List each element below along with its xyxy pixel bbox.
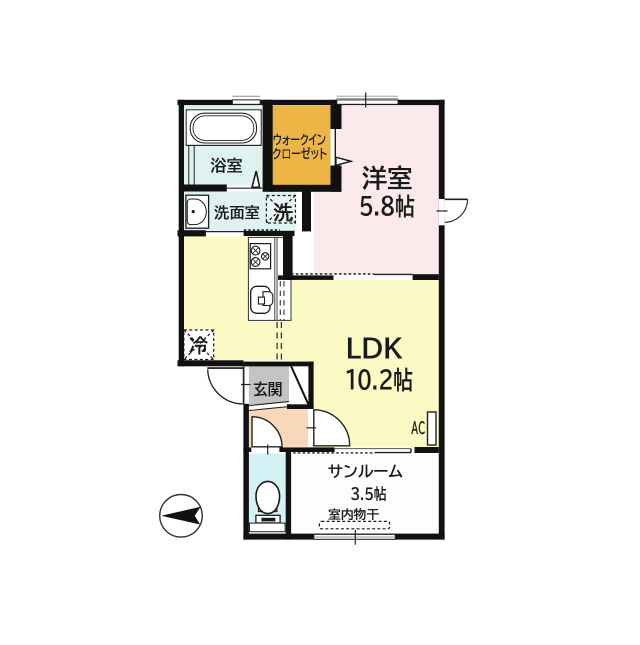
svg-text:5.8帖: 5.8帖 [359,194,415,218]
svg-text:洗: 洗 [272,202,293,223]
svg-text:玄関: 玄関 [253,381,282,397]
svg-text:洋室: 洋室 [362,165,413,192]
svg-text:サンルーム: サンルーム [328,463,403,479]
svg-text:洗面室: 洗面室 [214,205,260,220]
svg-text:冷: 冷 [189,336,208,355]
svg-text:クローゼット: クローゼット [272,148,327,161]
svg-text:3.5帖: 3.5帖 [351,485,387,501]
svg-text:ウォークイン: ウォークイン [273,133,326,147]
svg-text:AC: AC [411,419,425,435]
svg-text:LDK: LDK [346,336,403,362]
svg-text:浴室: 浴室 [210,157,242,173]
svg-text:10.2帖: 10.2帖 [345,367,413,393]
svg-text:室内物干: 室内物干 [328,507,379,521]
